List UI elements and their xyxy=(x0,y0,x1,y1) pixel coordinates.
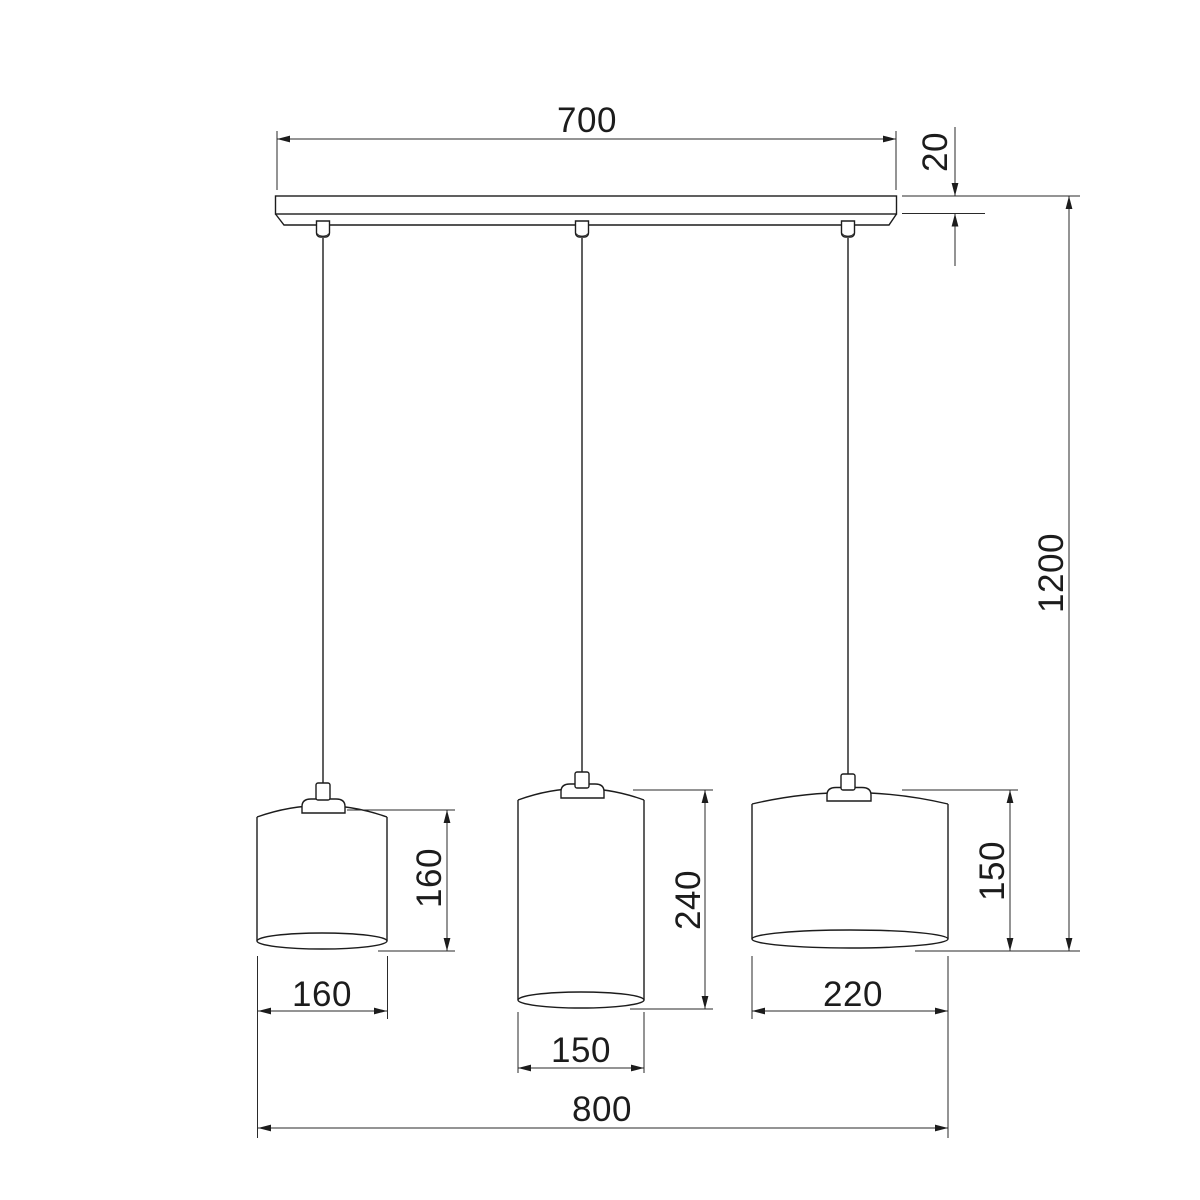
pendant-right xyxy=(752,774,948,948)
arrow-up-icon xyxy=(444,810,451,823)
cord-grips xyxy=(317,221,855,237)
arrow-right-icon xyxy=(935,1125,948,1132)
arrow-left-icon xyxy=(258,1125,271,1132)
arrow-left-icon xyxy=(752,1008,765,1015)
arrow-up-icon xyxy=(952,214,959,227)
arrow-down-icon xyxy=(952,183,959,196)
dim-overall-width-label: 800 xyxy=(572,1090,632,1129)
arrow-right-icon xyxy=(374,1008,387,1015)
dim-canopy-width-label: 700 xyxy=(557,101,617,140)
dim-right-shade-diameter-label: 220 xyxy=(823,975,883,1014)
dim-canopy-thickness-label: 20 xyxy=(916,132,955,172)
dim-middle-shade-height: 240 xyxy=(630,790,713,1009)
pendant-left xyxy=(257,783,387,949)
dim-middle-shade-diameter-label: 150 xyxy=(551,1031,611,1070)
dim-left-shade-height: 160 xyxy=(347,810,455,951)
dim-right-shade-height: 150 xyxy=(902,790,1018,951)
pendant-middle xyxy=(518,772,644,1008)
canopy-body xyxy=(276,196,897,214)
shade-left-bottom-rim xyxy=(257,933,387,949)
dim-left-shade-diameter: 160 xyxy=(258,956,388,1138)
dim-left-shade-height-label: 160 xyxy=(410,848,449,908)
arrow-left-icon xyxy=(518,1065,531,1072)
dim-right-shade-height-label: 150 xyxy=(973,841,1012,901)
arrow-right-icon xyxy=(631,1065,644,1072)
arrow-down-icon xyxy=(1066,938,1073,951)
arrow-left-icon xyxy=(258,1008,271,1015)
arrow-down-icon xyxy=(702,996,709,1009)
dim-canopy-width: 700 xyxy=(277,101,896,190)
socket-neck-left xyxy=(316,783,330,800)
socket-neck-middle xyxy=(575,772,589,788)
arrow-up-icon xyxy=(702,790,709,803)
shade-middle-bottom-rim xyxy=(518,992,644,1008)
dim-right-shade-diameter: 220 xyxy=(752,956,948,1138)
suspension-cords xyxy=(323,238,848,786)
pendant-lamp-drawing: 700 20 1200 160 160 xyxy=(0,0,1200,1200)
socket-cap-left xyxy=(302,799,345,813)
arrow-left-icon xyxy=(277,136,290,143)
dim-middle-shade-height-label: 240 xyxy=(669,870,708,930)
arrow-down-icon xyxy=(444,938,451,951)
arrow-right-icon xyxy=(935,1008,948,1015)
arrow-right-icon xyxy=(883,136,896,143)
socket-neck-right xyxy=(841,774,855,790)
dim-left-shade-diameter-label: 160 xyxy=(292,975,352,1014)
arrow-up-icon xyxy=(1007,790,1014,803)
dim-total-height-label: 1200 xyxy=(1032,533,1071,613)
dim-overall-width: 800 xyxy=(258,1090,948,1131)
dim-canopy-thickness: 20 xyxy=(902,127,1080,266)
arrow-down-icon xyxy=(1007,938,1014,951)
arrow-up-icon xyxy=(1066,196,1073,209)
shade-right-bottom-rim xyxy=(752,930,948,948)
technical-drawing-sheet: 700 20 1200 160 160 xyxy=(0,0,1200,1200)
dim-total-height: 1200 xyxy=(915,196,1080,951)
dim-middle-shade-diameter: 150 xyxy=(518,1012,644,1073)
